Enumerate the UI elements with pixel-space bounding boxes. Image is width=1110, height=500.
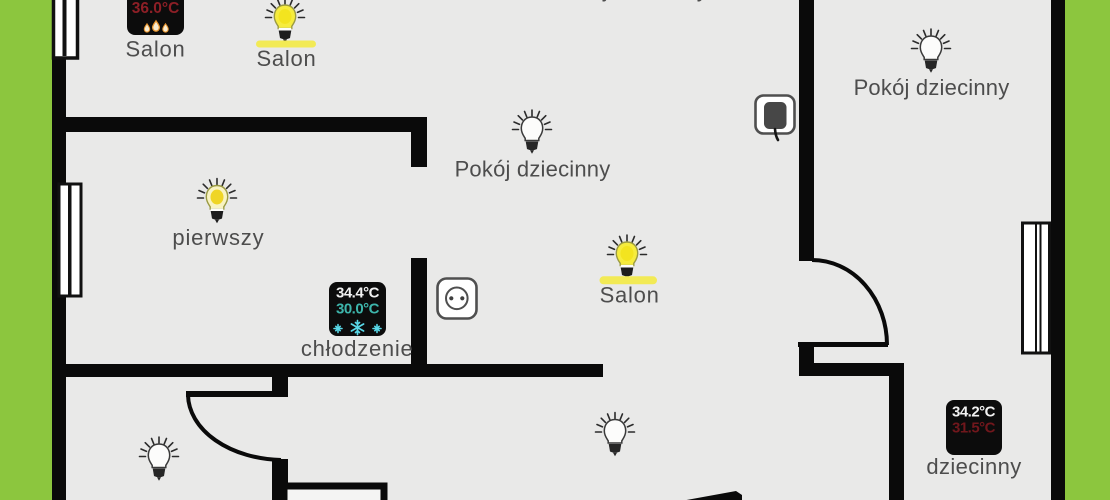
svg-text:Pokój dziecinny: Pokój dziecinny — [455, 157, 611, 182]
svg-text:Salon: Salon — [125, 37, 185, 62]
svg-text:chłodzenie: chłodzenie — [301, 336, 414, 361]
svg-text:34.2°C: 34.2°C — [952, 404, 996, 421]
svg-text:30.0°C: 30.0°C — [336, 301, 380, 318]
svg-text:34.4°C: 34.4°C — [336, 285, 380, 302]
svg-text:dziecinny: dziecinny — [926, 454, 1021, 479]
svg-text:Pokój dziecinny: Pokój dziecinny — [854, 75, 1010, 100]
svg-text:pierwszy: pierwszy — [172, 225, 264, 250]
svg-text:Salon: Salon — [600, 283, 660, 308]
svg-text:31.5°C: 31.5°C — [952, 420, 996, 437]
svg-text:36.0°C: 36.0°C — [132, 0, 180, 17]
svg-text:Pokój dziecinny: Pokój dziecinny — [552, 0, 708, 2]
svg-text:Salon: Salon — [256, 46, 316, 71]
